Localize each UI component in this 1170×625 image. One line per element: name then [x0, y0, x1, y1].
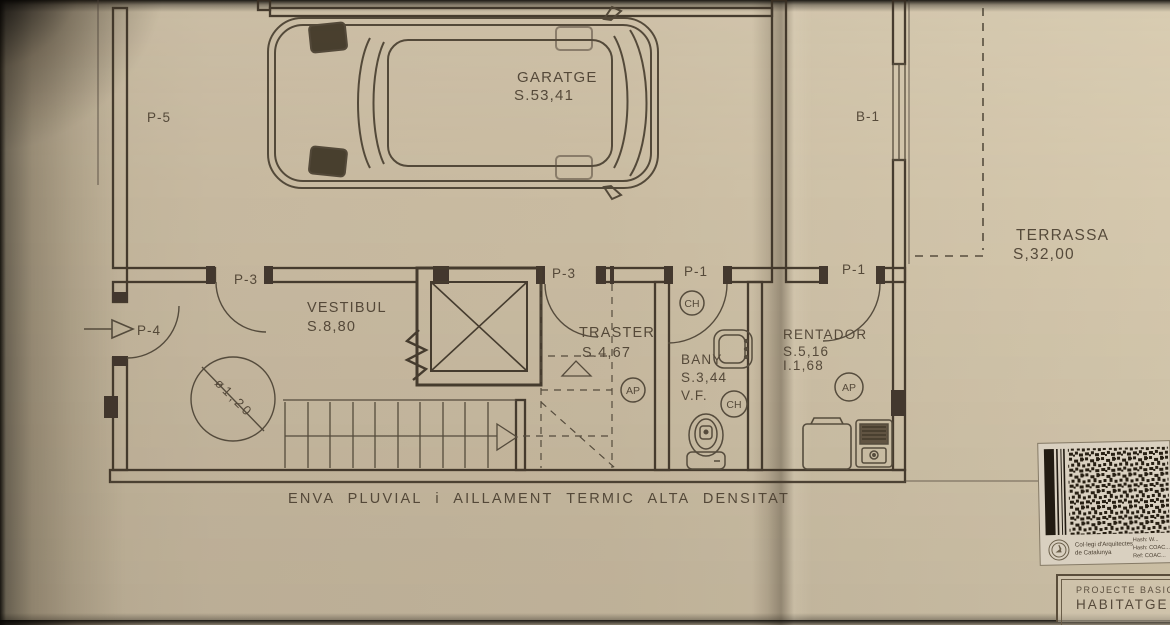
- toilet-icon: [687, 414, 725, 469]
- bany-area: S.3,44: [681, 370, 727, 385]
- door-label-p1-left: P-1: [684, 264, 708, 279]
- car-drawing: [268, 7, 658, 199]
- stamp-org-line1: Col·legi d'Arquitectes: [1075, 540, 1133, 548]
- garage-label: GARATGE: [517, 69, 598, 86]
- diameter-label: ø1,20: [212, 376, 257, 421]
- elevator-shaft: [417, 268, 541, 385]
- window-label-b1: B-1: [856, 109, 880, 124]
- floor-plan-drawing: GARATGE S.53,41 TERRASSA S,32,00 VESTIBU…: [0, 0, 1170, 620]
- architects-visa-stamp: Col·legi d'Arquitectes de Catalunya Hash…: [1037, 440, 1170, 569]
- door-label-p3-right: P-3: [552, 266, 576, 281]
- rentador-label: RENTADOR: [783, 327, 867, 342]
- stair-up-arrow: [562, 361, 591, 376]
- door-label-p4: P-4: [137, 323, 161, 338]
- footer-note: ENVA PLUVIAL i AILLAMENT TERMIC ALTA DEN…: [288, 491, 790, 507]
- stamp-org-line2: de Catalunya: [1075, 549, 1112, 557]
- title-block: PROJECTE BASIC HABITATGE U: [1056, 574, 1170, 622]
- barcode-solid-bar: [1044, 449, 1056, 535]
- traster-area: S.4,67: [582, 345, 631, 361]
- door-swings: [127, 282, 880, 358]
- ch-symbol-text: CH: [684, 298, 699, 310]
- stairs: [283, 400, 517, 468]
- door-label-p5: P-5: [147, 110, 171, 125]
- title-block-project-type: PROJECTE BASIC: [1076, 585, 1170, 595]
- ap-symbol-text: AP: [626, 385, 640, 397]
- boiler-icon: [856, 420, 892, 467]
- bany-vent-label: V.F.: [681, 388, 708, 403]
- title-block-project-name: HABITATGE U: [1076, 597, 1170, 612]
- vestibul-area: S.8,80: [307, 319, 356, 335]
- traster-label: TRASTER: [579, 325, 655, 341]
- stamp-meta-line1: Hash: W...: [1133, 537, 1159, 544]
- walls: [110, 0, 905, 482]
- terrace-area: S,32,00: [1013, 246, 1075, 263]
- ap-symbol-text: AP: [842, 382, 856, 394]
- title-block-inner: PROJECTE BASIC HABITATGE U: [1061, 579, 1170, 625]
- window-b1: [893, 64, 905, 160]
- stamp-meta-line2: Hash: COAC...: [1133, 545, 1170, 552]
- qr-code-block: [1068, 447, 1170, 535]
- garage-area: S.53,41: [514, 87, 574, 104]
- door-label-p1-right: P-1: [842, 262, 866, 277]
- bany-label: BANY: [681, 352, 723, 367]
- door-label-p3-left: P-3: [234, 272, 258, 287]
- rentador-area: S.5,16: [783, 344, 829, 359]
- terrace-dashed-boundary: [910, 8, 983, 256]
- stair-direction-arrow: [497, 424, 517, 450]
- coac-seal-logo: [1049, 540, 1069, 560]
- stamp-meta-line3: Ref: COAC...: [1133, 553, 1166, 560]
- entrance-arrow: [84, 320, 133, 338]
- ch-symbol-text: CH: [726, 399, 741, 411]
- terrace-label: TERRASSA: [1016, 227, 1109, 244]
- vestibul-label: VESTIBUL: [307, 300, 387, 316]
- rentador-extra: I.1,68: [783, 358, 824, 373]
- washer-icon: [803, 418, 851, 469]
